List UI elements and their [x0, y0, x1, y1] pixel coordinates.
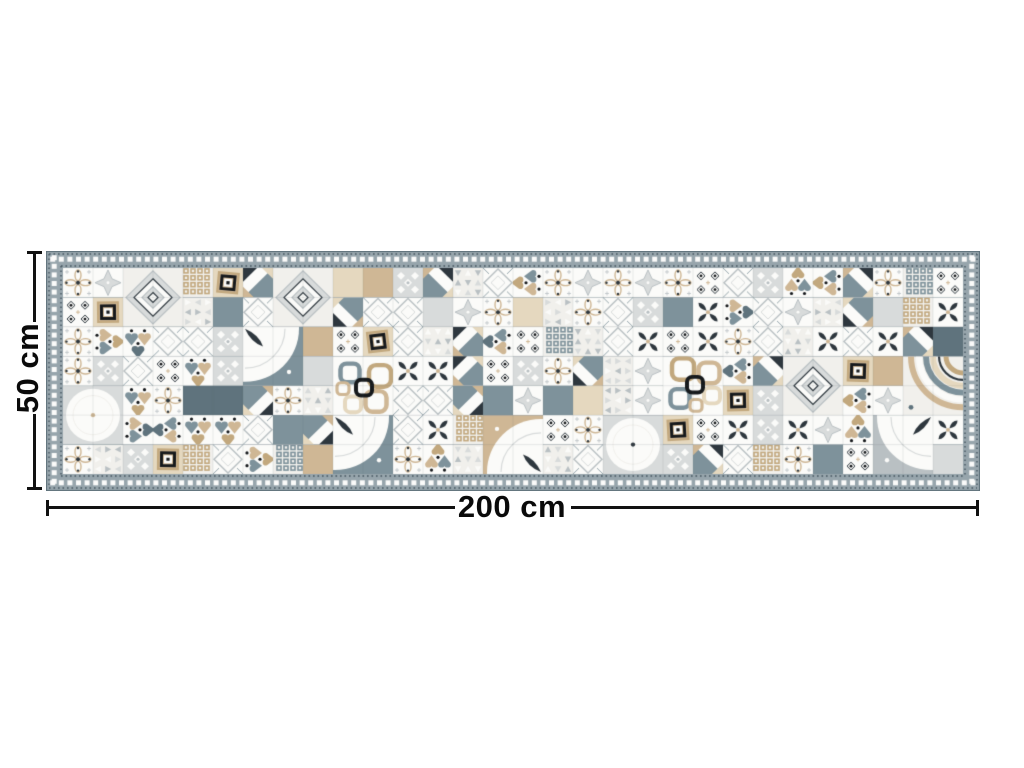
rug-pattern-canvas: [46, 251, 980, 491]
height-dim-tick-bottom: [27, 487, 42, 490]
width-dim-line-left: [47, 506, 455, 509]
width-dimension-label: 200 cm: [412, 489, 612, 525]
width-dim-tick-left: [46, 500, 49, 516]
width-dim-line-right: [571, 506, 978, 509]
height-dim-tick-top: [27, 251, 42, 254]
product-dimension-image: 50 cm 200 cm: [0, 0, 1024, 768]
width-dim-tick-right: [976, 500, 979, 516]
rug: [46, 251, 980, 491]
height-dimension-label: 50 cm: [10, 308, 46, 428]
